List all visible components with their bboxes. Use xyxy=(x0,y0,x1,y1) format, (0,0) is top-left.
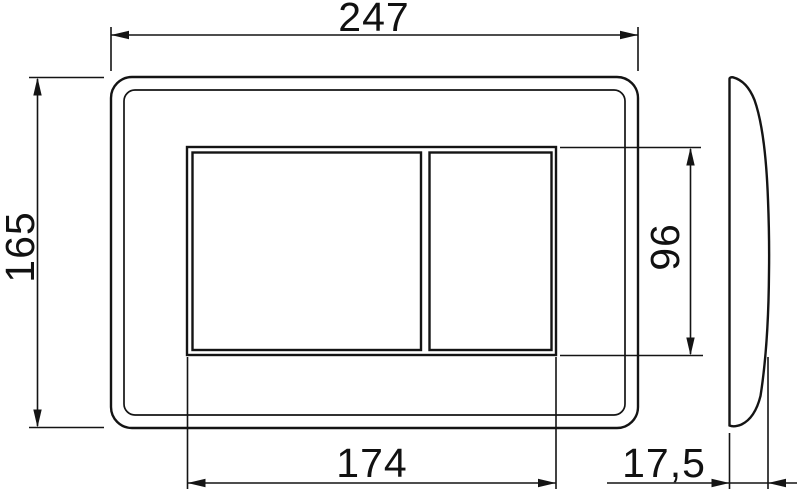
dimension-plate-height: 165 xyxy=(0,78,104,428)
plate-inner-outline xyxy=(124,90,625,415)
arrowhead-left-icon xyxy=(768,479,786,487)
arrowhead-down-icon xyxy=(686,338,694,356)
arrowhead-up-icon xyxy=(686,148,694,166)
dimension-plate-depth: 17,5 xyxy=(607,357,797,489)
dimension-label-plate-width: 247 xyxy=(338,0,409,40)
arrowhead-right-icon xyxy=(538,479,556,487)
arrowhead-up-icon xyxy=(33,78,41,96)
button-recess-outline xyxy=(187,147,556,355)
arrowhead-right-icon xyxy=(620,31,638,39)
large-flush-button xyxy=(193,153,422,351)
flush-plate-technical-drawing: 247 165 96 174 xyxy=(0,0,800,491)
arrowhead-right-icon xyxy=(712,479,730,487)
small-flush-button xyxy=(430,153,552,351)
dimension-button-area-height: 96 xyxy=(560,148,703,356)
dimension-label-button-area-height: 96 xyxy=(642,223,688,271)
dimension-label-button-area-width: 174 xyxy=(336,440,407,486)
plate-outer-outline xyxy=(111,77,638,428)
front-view xyxy=(111,77,638,428)
dimension-plate-width: 247 xyxy=(111,0,638,71)
arrowhead-down-icon xyxy=(33,410,41,428)
technical-drawing-page: 247 165 96 174 xyxy=(0,0,800,491)
arrowhead-left-icon xyxy=(188,479,206,487)
arrowhead-left-icon xyxy=(111,31,129,39)
dimension-label-plate-height: 165 xyxy=(0,211,43,282)
dimension-label-plate-depth: 17,5 xyxy=(622,440,706,486)
dimension-button-area-width: 174 xyxy=(188,357,557,489)
side-profile-outline xyxy=(730,77,770,426)
side-view xyxy=(730,77,770,426)
